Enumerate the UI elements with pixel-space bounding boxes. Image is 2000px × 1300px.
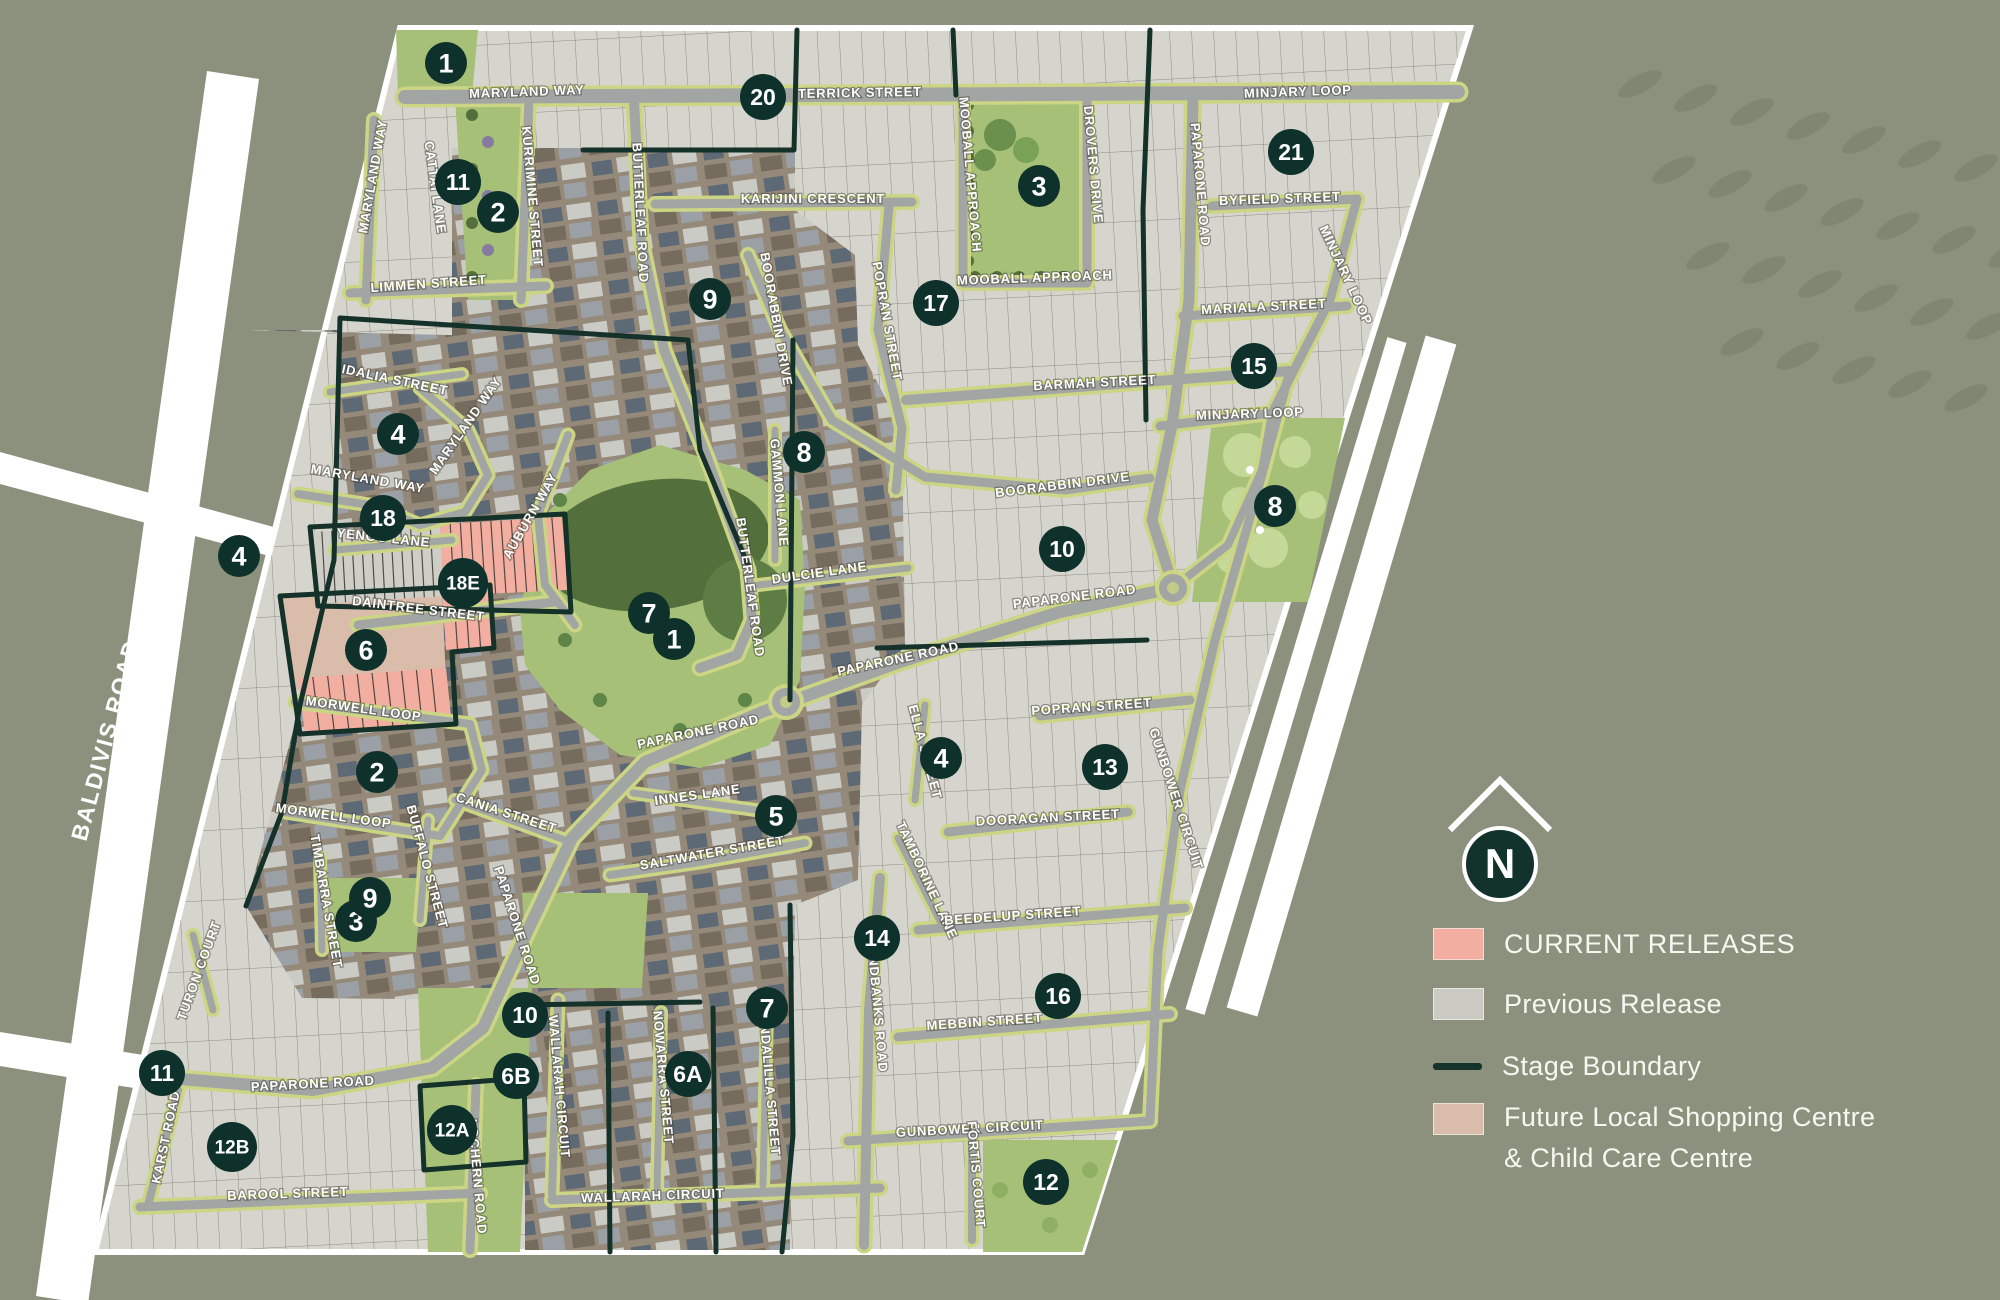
- stage-marker-11[interactable]: 11: [435, 159, 481, 205]
- svg-text:18: 18: [370, 505, 396, 531]
- svg-text:1: 1: [438, 48, 453, 78]
- stage-marker-9[interactable]: 9: [349, 877, 391, 919]
- stage-marker-10[interactable]: 10: [502, 992, 548, 1038]
- svg-text:9: 9: [362, 883, 377, 913]
- stage-marker-18[interactable]: 18: [360, 495, 406, 541]
- stage-marker-15[interactable]: 15: [1231, 343, 1277, 389]
- svg-text:20: 20: [750, 84, 776, 110]
- compass-chevron: [1450, 780, 1550, 830]
- legend-item-current-releases: CURRENT RELEASES: [1433, 925, 1795, 963]
- masterplan-screen: MARYLAND WAYTERRICK STREETMINJARY LOOPMA…: [0, 0, 2000, 1300]
- svg-text:6A: 6A: [673, 1061, 702, 1087]
- svg-text:2: 2: [490, 197, 505, 227]
- svg-text:10: 10: [512, 1002, 538, 1028]
- stage-marker-10[interactable]: 10: [1039, 526, 1085, 572]
- stage-marker-17[interactable]: 17: [913, 280, 959, 326]
- svg-text:6B: 6B: [501, 1063, 530, 1089]
- north-arrow-icon: N: [1440, 774, 1560, 908]
- svg-text:5: 5: [768, 801, 783, 831]
- svg-text:7: 7: [759, 993, 774, 1023]
- stage-marker-14[interactable]: 14: [854, 915, 900, 961]
- stage-marker-6A[interactable]: 6A: [665, 1051, 711, 1097]
- svg-text:12B: 12B: [215, 1138, 250, 1159]
- svg-text:21: 21: [1278, 139, 1304, 165]
- stage-marker-12A[interactable]: 12A: [427, 1105, 477, 1155]
- stage-marker-21[interactable]: 21: [1268, 129, 1314, 175]
- legend-item-future-shopping-centre: Future Local Shopping Centre & Child Car…: [1433, 1097, 1875, 1135]
- compass: N: [1440, 774, 1560, 908]
- stage-marker-3[interactable]: 3: [1018, 165, 1060, 207]
- svg-text:11: 11: [446, 169, 471, 195]
- legend-swatch-previous-release: [1433, 988, 1484, 1020]
- stage-marker-4[interactable]: 4: [218, 535, 260, 577]
- svg-text:9: 9: [702, 284, 717, 314]
- svg-text:16: 16: [1045, 983, 1071, 1009]
- compass-letter: N: [1485, 840, 1515, 887]
- stage-marker-4[interactable]: 4: [377, 413, 419, 455]
- legend-label-previous-release: Previous Release: [1504, 989, 1722, 1019]
- stage-marker-9[interactable]: 9: [689, 278, 731, 320]
- stage-marker-6B[interactable]: 6B: [493, 1053, 539, 1099]
- svg-text:4: 4: [390, 419, 405, 449]
- legend-label-future-shopping-centre: Future Local Shopping Centre & Child Car…: [1504, 1097, 1875, 1179]
- legend-item-stage-boundary: Stage Boundary: [1433, 1047, 1701, 1085]
- svg-text:10: 10: [1049, 536, 1075, 562]
- stage-marker-16[interactable]: 16: [1035, 973, 1081, 1019]
- svg-text:18E: 18E: [446, 574, 480, 595]
- stage-marker-4[interactable]: 4: [920, 737, 962, 779]
- svg-text:4: 4: [933, 743, 948, 773]
- svg-text:13: 13: [1092, 754, 1118, 780]
- svg-text:3: 3: [1031, 171, 1046, 201]
- svg-text:6: 6: [358, 635, 373, 665]
- stage-marker-8[interactable]: 8: [783, 431, 825, 473]
- stage-marker-20[interactable]: 20: [740, 74, 786, 120]
- svg-text:11: 11: [150, 1060, 175, 1086]
- svg-text:4: 4: [231, 541, 246, 571]
- svg-text:14: 14: [864, 925, 890, 951]
- stage-marker-13[interactable]: 13: [1082, 744, 1128, 790]
- stage-marker-2[interactable]: 2: [356, 751, 398, 793]
- stage-marker-5[interactable]: 5: [755, 795, 797, 837]
- svg-text:7: 7: [641, 598, 656, 628]
- legend-label-stage-boundary: Stage Boundary: [1502, 1051, 1701, 1081]
- legend-item-previous-release: Previous Release: [1433, 985, 1722, 1023]
- stage-marker-2[interactable]: 2: [477, 191, 519, 233]
- stage-marker-12B[interactable]: 12B: [207, 1122, 257, 1172]
- stage-marker-11[interactable]: 11: [139, 1050, 185, 1096]
- stage-marker-12[interactable]: 12: [1023, 1159, 1069, 1205]
- legend-label-current-releases: CURRENT RELEASES: [1504, 929, 1795, 959]
- svg-text:8: 8: [796, 437, 811, 467]
- svg-text:1: 1: [666, 624, 681, 654]
- legend-swatch-future-shopping-centre: [1433, 1103, 1484, 1135]
- street-label: KARIJINI CRESCENT: [741, 191, 885, 206]
- street-label: TERRICK STREET: [798, 84, 922, 101]
- stage-marker-6[interactable]: 6: [345, 629, 387, 671]
- stage-marker-1[interactable]: 1: [425, 42, 467, 84]
- background-foliage: [1615, 65, 2000, 417]
- legend-swatch-current-releases: [1433, 928, 1484, 960]
- svg-text:12: 12: [1033, 1169, 1059, 1195]
- svg-text:17: 17: [923, 290, 949, 316]
- stage-marker-8[interactable]: 8: [1254, 485, 1296, 527]
- svg-text:2: 2: [369, 757, 384, 787]
- stage-marker-7[interactable]: 7: [746, 987, 788, 1029]
- stage-marker-18E[interactable]: 18E: [438, 558, 488, 608]
- svg-text:15: 15: [1241, 353, 1267, 379]
- svg-text:12A: 12A: [435, 1121, 470, 1142]
- svg-text:8: 8: [1267, 491, 1282, 521]
- legend-swatch-stage-boundary: [1433, 1063, 1482, 1070]
- stage-marker-1[interactable]: 1: [653, 618, 695, 660]
